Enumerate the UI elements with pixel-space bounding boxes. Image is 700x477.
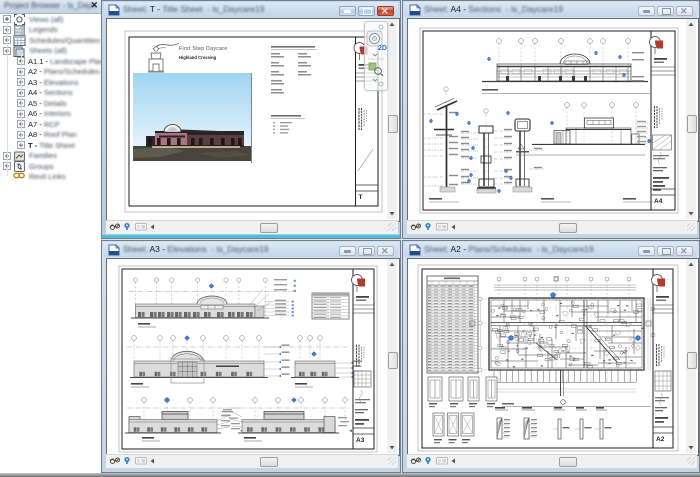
- svg-text:A4: A4: [654, 198, 663, 205]
- svg-text:2D: 2D: [378, 45, 387, 52]
- svg-text:A3: A3: [356, 437, 365, 444]
- svg-text:T: T: [359, 194, 363, 201]
- svg-text:First Step Daycare: First Step Daycare: [179, 46, 228, 52]
- svg-text:Highland Crossing: Highland Crossing: [179, 55, 217, 60]
- svg-text:A2: A2: [656, 436, 665, 443]
